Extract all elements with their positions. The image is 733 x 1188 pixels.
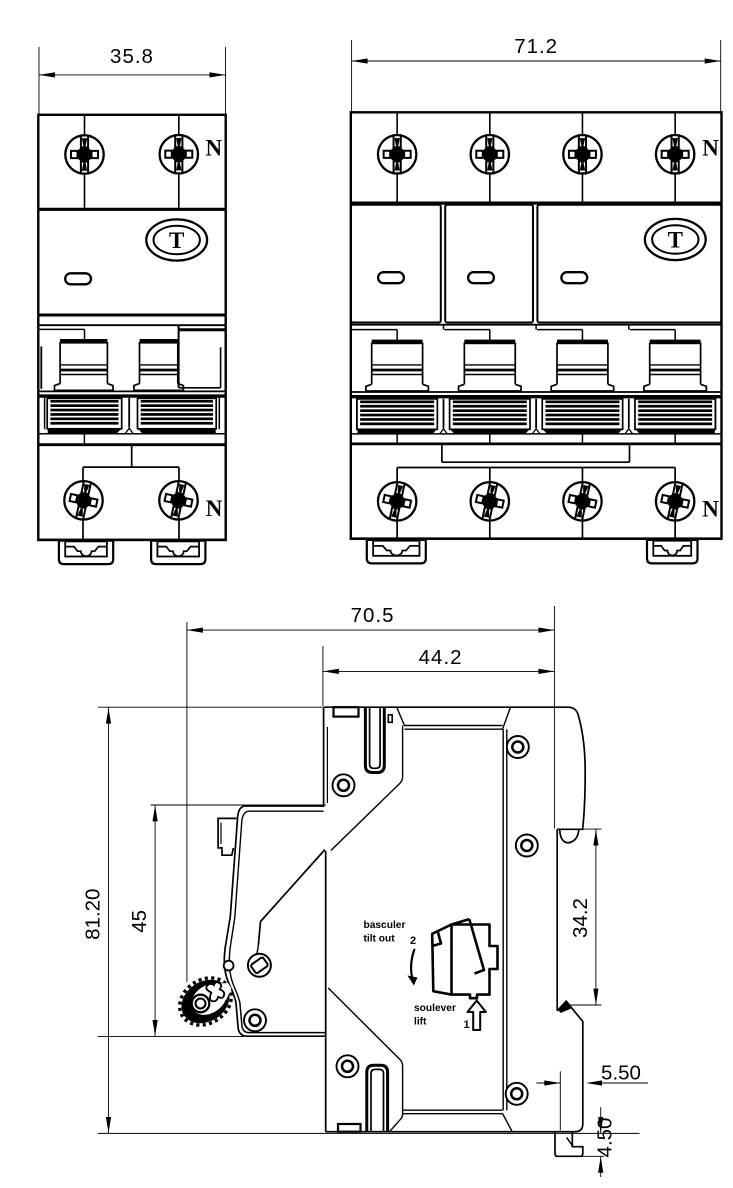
svg-text:2: 2	[410, 935, 416, 947]
svg-text:soulever: soulever	[414, 1003, 456, 1014]
svg-text:basculer: basculer	[364, 920, 406, 931]
svg-text:44.2: 44.2	[419, 646, 463, 669]
svg-text:34.2: 34.2	[569, 898, 592, 938]
svg-text:35.8: 35.8	[110, 45, 154, 68]
svg-text:5.50: 5.50	[601, 1062, 641, 1085]
svg-text:45: 45	[128, 910, 151, 933]
svg-text:81.20: 81.20	[82, 889, 105, 940]
svg-text:N: N	[205, 136, 222, 161]
svg-text:N: N	[702, 136, 719, 161]
svg-text:T: T	[668, 228, 683, 253]
svg-text:N: N	[206, 496, 223, 521]
svg-text:4.50: 4.50	[594, 1118, 617, 1158]
svg-text:70.5: 70.5	[351, 604, 395, 627]
svg-text:N: N	[702, 497, 719, 522]
svg-text:1: 1	[463, 1019, 469, 1031]
svg-text:tilt out: tilt out	[364, 934, 396, 945]
svg-text:T: T	[169, 228, 184, 253]
svg-text:71.2: 71.2	[514, 35, 558, 58]
svg-text:lift: lift	[414, 1017, 427, 1028]
